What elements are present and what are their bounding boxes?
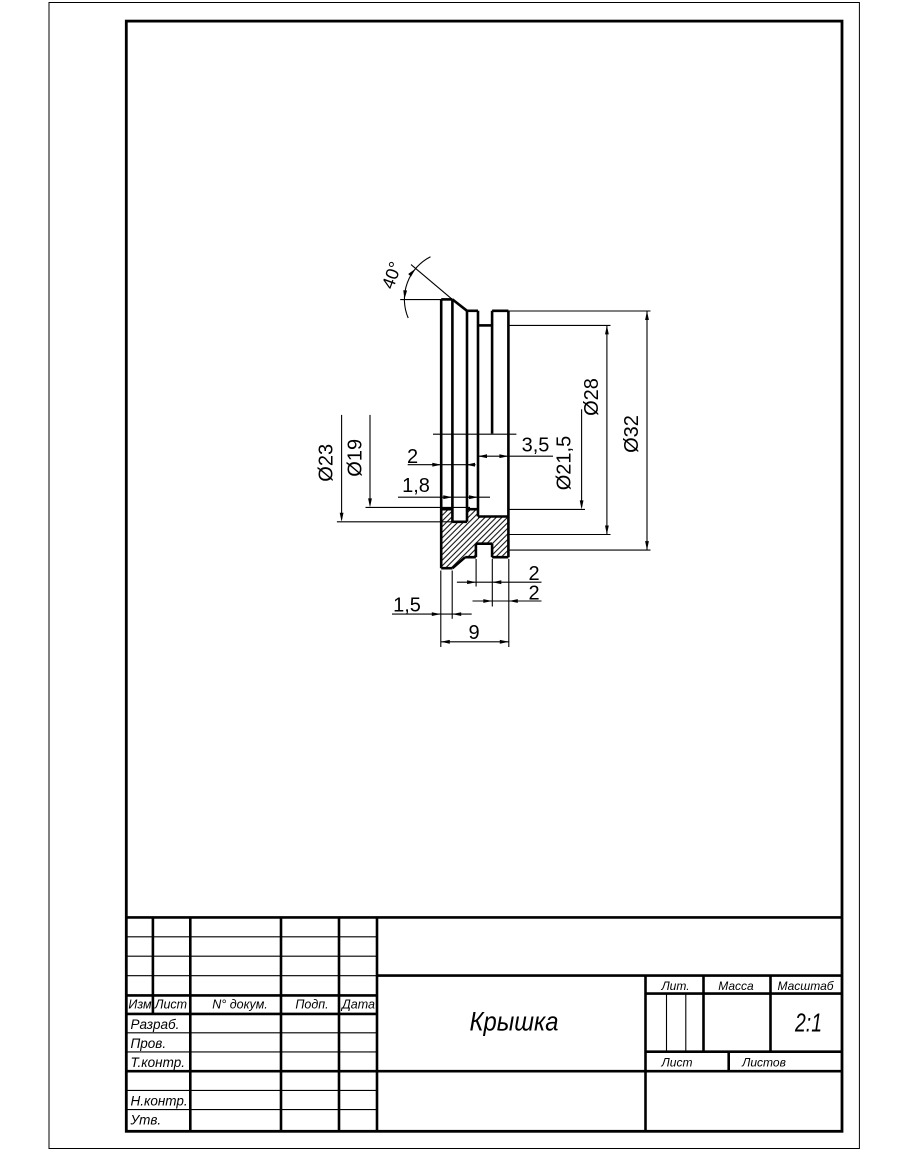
svg-text:Ø28: Ø28 — [581, 378, 603, 416]
svg-text:Пров.: Пров. — [131, 1036, 167, 1051]
svg-text:40°: 40° — [378, 259, 406, 291]
svg-text:Масса: Масса — [718, 979, 754, 993]
svg-text:Подп.: Подп. — [295, 998, 328, 1012]
svg-text:Масштаб: Масштаб — [777, 979, 834, 993]
svg-text:2:1: 2:1 — [794, 1008, 822, 1038]
svg-text:Листов: Листов — [741, 1056, 786, 1070]
svg-text:N° докум.: N° докум. — [212, 998, 268, 1012]
svg-text:Крышка: Крышка — [470, 1007, 559, 1037]
svg-text:Н.контр.: Н.контр. — [131, 1093, 188, 1108]
svg-text:Лист: Лист — [661, 1056, 693, 1070]
svg-text:9: 9 — [468, 622, 479, 644]
svg-text:Изм: Изм — [128, 998, 152, 1012]
svg-text:Ø32: Ø32 — [621, 415, 643, 453]
svg-text:Т.контр.: Т.контр. — [131, 1055, 185, 1070]
svg-text:1,8: 1,8 — [402, 475, 430, 497]
svg-text:Ø19: Ø19 — [344, 439, 366, 477]
svg-text:2: 2 — [528, 582, 539, 604]
svg-text:1,5: 1,5 — [393, 595, 421, 617]
svg-text:Разраб.: Разраб. — [131, 1017, 180, 1032]
svg-text:Ø21,5: Ø21,5 — [554, 436, 576, 490]
svg-text:3,5: 3,5 — [522, 435, 550, 457]
svg-text:Лист: Лист — [154, 998, 187, 1012]
svg-text:Утв.: Утв. — [130, 1113, 162, 1128]
svg-text:2: 2 — [407, 446, 418, 468]
svg-text:Ø23: Ø23 — [316, 444, 338, 482]
svg-text:Дата: Дата — [340, 998, 375, 1012]
svg-text:Лит.: Лит. — [660, 979, 689, 993]
